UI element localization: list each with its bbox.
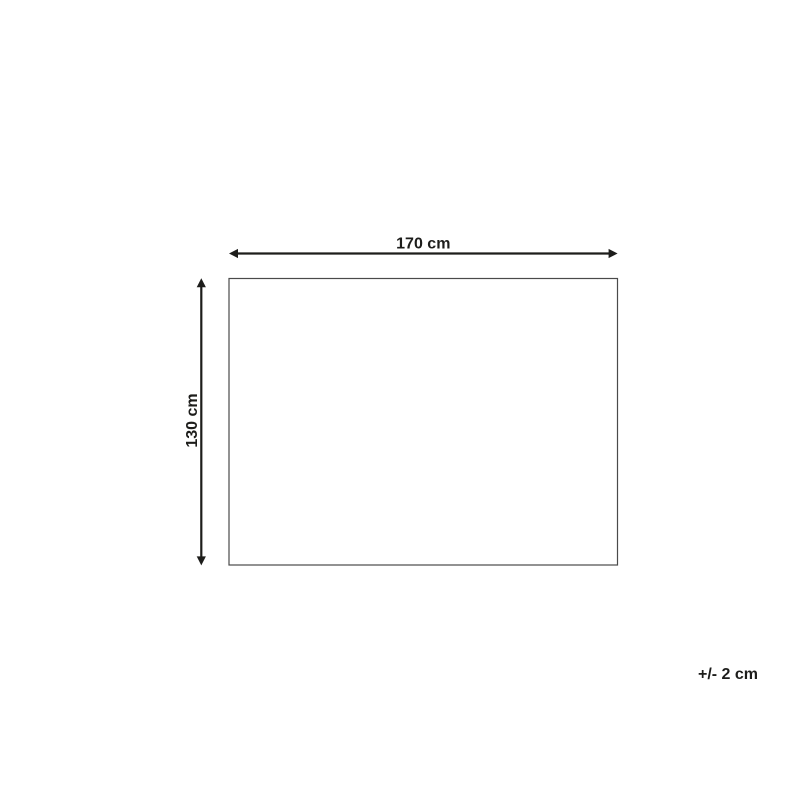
svg-text:130 cm: 130 cm <box>184 393 201 447</box>
svg-text:+/- 2 cm: +/- 2 cm <box>698 666 758 683</box>
svg-text:170 cm: 170 cm <box>396 235 450 252</box>
